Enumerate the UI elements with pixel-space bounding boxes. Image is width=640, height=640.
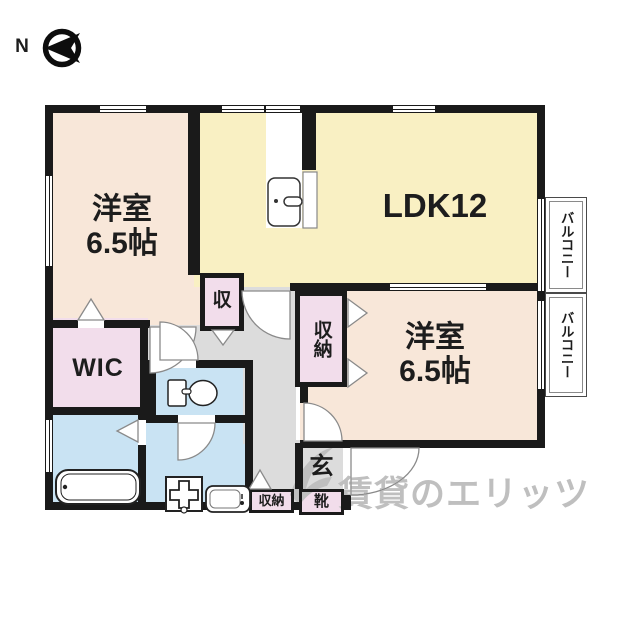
toilet-door-opening: [160, 360, 196, 368]
wall-wic-bottom: [45, 407, 148, 415]
wall-bedroom2-left-stub: [300, 387, 308, 403]
bedroom1-size: 6.5帖: [86, 227, 158, 261]
hallway-floor-upper: [148, 325, 253, 365]
sliding-door-ldk-bedroom2: [390, 283, 486, 291]
bedroom2-closet-text: 収納: [310, 320, 331, 358]
balcony-door-bedroom2: [537, 301, 545, 389]
hall-storage-text: 収: [212, 290, 231, 311]
north-letter: N: [15, 36, 29, 57]
wall-bedroom1-bottom-a: [45, 320, 78, 328]
toilet-floor: [154, 366, 247, 418]
wall-toilet-right: [245, 360, 253, 420]
ldk-label: LDK12: [335, 186, 535, 226]
hall-storage-label: 収: [203, 279, 241, 323]
washroom-floor: [146, 418, 250, 507]
bedroom2-name: 洋室: [399, 321, 471, 355]
washroom-door-opening: [178, 415, 215, 423]
window-top-kitchen: [266, 105, 300, 113]
entrance-storage-text: 収納: [258, 494, 284, 509]
watermark-text-span: 賃貸のエリッツ: [338, 475, 590, 514]
wall-right-upper: [537, 105, 545, 199]
wic-label: WIC: [50, 352, 146, 384]
wall-toilet-left: [148, 360, 156, 420]
bathroom-floor: [48, 415, 146, 507]
watermark-logo: [282, 443, 340, 509]
window-top-3: [393, 105, 435, 113]
window-top-2: [222, 105, 264, 113]
floor-plan: N 洋室 6.5帖 LDK12 洋室 6.5帖 WIC バルコニー バルコニー …: [0, 0, 640, 640]
wic-door-opening: [78, 320, 104, 328]
kitchen-floor: [266, 112, 302, 228]
balcony-upper-text: バルコニー: [558, 211, 573, 279]
wall-right-lower: [537, 389, 545, 447]
watermark-text: 賃貸のエリッツ: [338, 466, 590, 517]
ldk-text: LDK12: [383, 188, 488, 225]
bedroom2-label: 洋室 6.5帖: [335, 318, 535, 392]
north-compass-icon: [45, 32, 80, 65]
bathroom-door-opening: [138, 420, 146, 445]
window-left-bathroom: [45, 420, 53, 472]
bedroom2-closet-label: 収納: [298, 297, 344, 381]
balcony-upper-label: バルコニー: [545, 200, 587, 290]
window-top-1: [100, 105, 146, 113]
wall-right-mid: [537, 291, 545, 301]
balcony-door-ldk: [537, 199, 545, 291]
wall-kitchen-partition: [302, 112, 316, 170]
balcony-lower-label: バルコニー: [545, 297, 587, 393]
wall-ldk-bottom-a: [290, 283, 390, 291]
bedroom2-size: 6.5帖: [399, 355, 471, 389]
bedroom1-label: 洋室 6.5帖: [52, 190, 192, 264]
north-label: N: [10, 34, 34, 60]
bedroom1-name: 洋室: [86, 193, 158, 227]
balcony-lower-text: バルコニー: [558, 311, 573, 379]
wic-text: WIC: [72, 354, 124, 382]
